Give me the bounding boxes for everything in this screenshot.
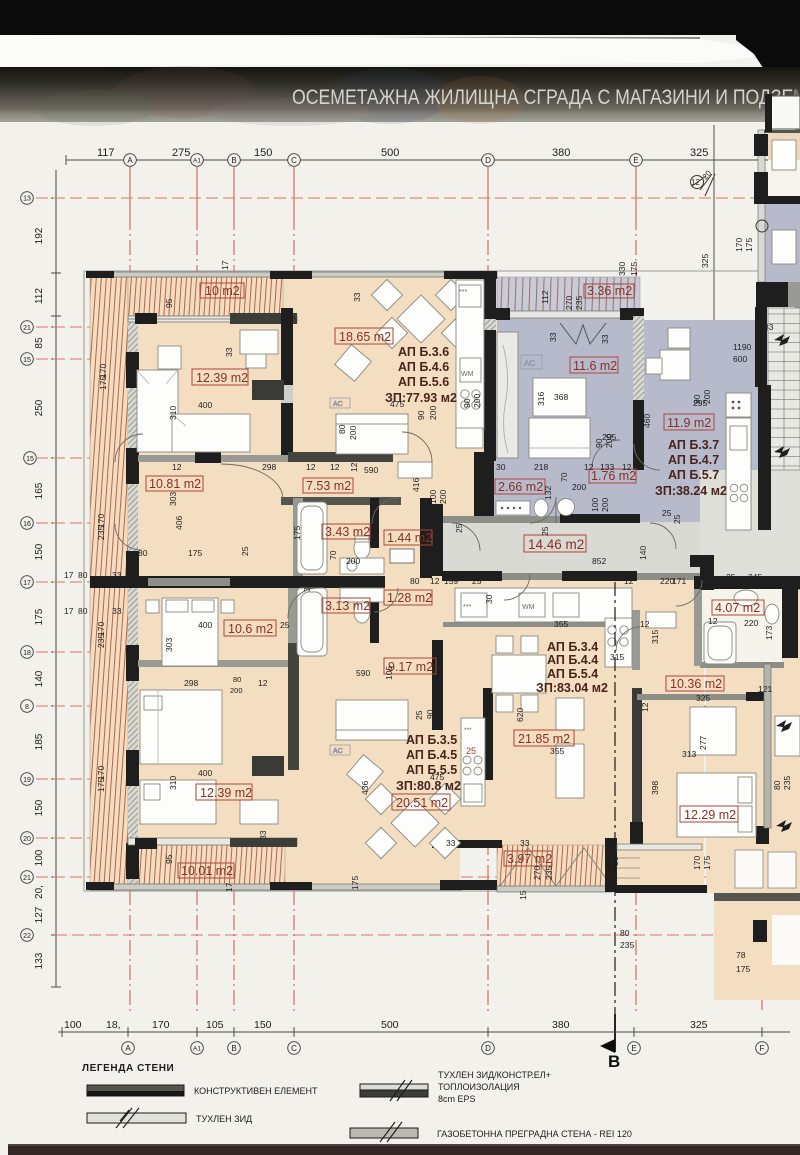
svg-text:235: 235 [544, 866, 554, 880]
svg-text:АП Б.4.7: АП Б.4.7 [668, 453, 719, 467]
svg-text:127: 127 [34, 906, 45, 923]
svg-text:140: 140 [34, 670, 45, 687]
svg-text:12: 12 [708, 616, 718, 626]
svg-text:WM: WM [522, 604, 535, 611]
svg-text:100: 100 [64, 1019, 82, 1031]
svg-text:235: 235 [96, 526, 106, 540]
svg-text:ЗП:83.04 м2: ЗП:83.04 м2 [536, 681, 608, 695]
svg-text:ТОПЛОИЗОЛАЦИЯ: ТОПЛОИЗОЛАЦИЯ [438, 1082, 520, 1092]
svg-text:АП Б.5.7: АП Б.5.7 [668, 468, 719, 482]
svg-text:460: 460 [642, 414, 652, 428]
svg-text:33: 33 [446, 838, 456, 848]
svg-text:78: 78 [736, 950, 746, 960]
svg-text:150: 150 [254, 1019, 272, 1031]
svg-text:10.36 m2: 10.36 m2 [670, 677, 722, 691]
svg-text:218: 218 [534, 462, 548, 472]
svg-text:277: 277 [698, 736, 708, 750]
svg-text:80: 80 [410, 576, 420, 586]
svg-text:АП Б.4.5: АП Б.4.5 [406, 748, 457, 762]
svg-text:355: 355 [550, 746, 564, 756]
svg-text:170: 170 [152, 1019, 170, 1031]
svg-text:12: 12 [624, 576, 634, 586]
svg-text:475: 475 [390, 399, 404, 409]
svg-text:ЗП:38.24 м2: ЗП:38.24 м2 [655, 484, 727, 498]
svg-text:95: 95 [164, 854, 174, 864]
svg-text:ОСЕМЕТАЖНА ЖИЛИЩНА СГРАДА С МА: ОСЕМЕТАЖНА ЖИЛИЩНА СГРАДА С МАГАЗИНИ И П… [292, 86, 800, 109]
svg-text:25: 25 [672, 514, 682, 524]
svg-text:ТУХЛЕН ЗИД: ТУХЛЕН ЗИД [196, 1114, 252, 1124]
svg-text:14.46 m2: 14.46 m2 [528, 537, 584, 552]
svg-text:80: 80 [337, 424, 347, 434]
svg-text:90: 90 [594, 438, 604, 448]
svg-text:ТУХЛЕН ЗИД/КОНСТР.ЕЛ+: ТУХЛЕН ЗИД/КОНСТР.ЕЛ+ [438, 1070, 551, 1080]
svg-text:7.53 m2: 7.53 m2 [306, 479, 351, 493]
svg-text:590: 590 [364, 465, 378, 475]
svg-text:12: 12 [430, 576, 440, 586]
svg-text:165: 165 [34, 482, 45, 499]
svg-text:200: 200 [702, 390, 712, 404]
svg-text:25: 25 [240, 546, 250, 556]
svg-text:175: 175 [98, 376, 108, 390]
svg-text:398: 398 [650, 781, 660, 795]
svg-text:A1: A1 [193, 1046, 201, 1053]
svg-text:30: 30 [484, 594, 494, 604]
svg-text:175: 175 [736, 964, 750, 974]
svg-text:235: 235 [574, 296, 584, 310]
svg-text:25: 25 [454, 523, 464, 533]
svg-text:АП Б.3.5: АП Б.3.5 [406, 733, 457, 747]
svg-text:8: 8 [25, 704, 29, 711]
svg-text:175: 175 [96, 778, 106, 792]
svg-text:КОНСТРУКТИВЕН ЕЛЕМЕНТ: КОНСТРУКТИВЕН ЕЛЕМЕНТ [194, 1086, 318, 1096]
svg-text:380: 380 [552, 1019, 570, 1031]
svg-text:33: 33 [112, 606, 122, 616]
svg-text:620: 620 [515, 708, 525, 722]
svg-text:25: 25 [726, 572, 736, 582]
svg-text:A1: A1 [193, 158, 201, 165]
svg-text:21.85 m2: 21.85 m2 [518, 732, 570, 746]
svg-text:590: 590 [356, 668, 370, 678]
svg-text:ЛЕГЕНДА СТЕНИ: ЛЕГЕНДА СТЕНИ [82, 1063, 174, 1074]
svg-text:298: 298 [262, 462, 276, 472]
svg-text:***: *** [459, 289, 467, 296]
svg-text:E: E [631, 1044, 636, 1053]
svg-text:15: 15 [26, 456, 34, 463]
svg-text:11.6 m2: 11.6 m2 [573, 359, 617, 373]
svg-text:33: 33 [112, 570, 122, 580]
svg-text:10.81 m2: 10.81 m2 [149, 477, 201, 491]
svg-text:90: 90 [425, 709, 435, 719]
svg-text:475: 475 [430, 772, 444, 782]
svg-text:192: 192 [34, 227, 45, 244]
svg-text:220: 220 [744, 618, 758, 628]
svg-text:500: 500 [381, 1019, 399, 1031]
svg-text:12: 12 [640, 702, 650, 712]
svg-text:20: 20 [23, 836, 31, 843]
svg-text:10 m2: 10 m2 [205, 284, 240, 298]
svg-text:235: 235 [782, 776, 792, 790]
svg-text:200: 200 [348, 426, 358, 440]
svg-text:17: 17 [220, 260, 230, 270]
svg-text:355: 355 [554, 619, 568, 629]
svg-text:175: 175 [744, 238, 754, 252]
svg-text:235: 235 [96, 634, 106, 648]
svg-text:3.36 m2: 3.36 m2 [587, 284, 632, 298]
svg-text:117: 117 [97, 147, 115, 159]
svg-text:200: 200 [428, 406, 438, 420]
svg-text:245: 245 [748, 572, 762, 582]
svg-text:D: D [485, 1044, 491, 1053]
svg-text:159: 159 [444, 576, 458, 586]
svg-text:175: 175 [34, 608, 45, 625]
svg-text:310: 310 [168, 406, 178, 420]
svg-text:B: B [231, 1044, 236, 1053]
svg-text:18.65 m2: 18.65 m2 [339, 330, 391, 344]
svg-text:12: 12 [172, 462, 182, 472]
svg-text:ЗП:80.8 м2: ЗП:80.8 м2 [396, 779, 461, 793]
svg-text:325: 325 [690, 1019, 708, 1031]
svg-text:33: 33 [600, 334, 610, 344]
svg-text:АП Б.4.6: АП Б.4.6 [398, 360, 449, 374]
svg-text:12: 12 [420, 552, 430, 562]
svg-text:200: 200 [230, 686, 243, 695]
svg-text:***: *** [463, 604, 471, 611]
svg-text:80: 80 [620, 928, 630, 938]
svg-text:33: 33 [258, 830, 268, 840]
svg-text:17: 17 [64, 606, 74, 616]
svg-text:175: 175 [350, 876, 360, 890]
svg-text:150: 150 [254, 147, 272, 159]
svg-text:80: 80 [78, 570, 88, 580]
svg-text:21: 21 [23, 325, 31, 332]
svg-text:80: 80 [138, 548, 148, 558]
svg-text:133: 133 [34, 952, 45, 969]
svg-text:150: 150 [34, 799, 45, 816]
svg-text:200: 200 [472, 394, 482, 408]
svg-text:406: 406 [174, 516, 184, 530]
svg-text:220: 220 [660, 576, 674, 586]
svg-text:12.29 m2: 12.29 m2 [684, 808, 736, 822]
svg-text:2.66 m2: 2.66 m2 [498, 480, 543, 494]
svg-text:АП Б.3.7: АП Б.3.7 [668, 438, 719, 452]
svg-text:25: 25 [540, 526, 550, 536]
svg-text:80: 80 [772, 780, 782, 790]
svg-text:150: 150 [34, 543, 45, 560]
svg-text:400: 400 [198, 768, 212, 778]
svg-text:325: 325 [690, 147, 708, 159]
svg-text:313: 313 [682, 749, 696, 759]
svg-text:80: 80 [233, 675, 241, 684]
svg-text:AC: AC [333, 401, 343, 408]
svg-text:25: 25 [466, 746, 476, 756]
svg-text:12: 12 [691, 178, 700, 187]
svg-text:368: 368 [554, 392, 568, 402]
svg-text:436: 436 [360, 781, 370, 795]
svg-text:200: 200 [604, 434, 614, 448]
svg-text:105: 105 [206, 1019, 224, 1031]
svg-text:12: 12 [584, 462, 594, 472]
svg-text:200: 200 [435, 705, 445, 719]
svg-text:12: 12 [376, 576, 386, 586]
svg-text:AC: AC [333, 748, 343, 755]
svg-text:70: 70 [328, 550, 338, 560]
svg-text:416: 416 [411, 478, 421, 492]
svg-text:3.43 m2: 3.43 m2 [325, 525, 370, 539]
svg-text:175: 175 [292, 526, 302, 540]
svg-text:12.39 m2: 12.39 m2 [200, 786, 252, 800]
svg-text:330: 330 [617, 262, 627, 276]
svg-text:10.01 m2: 10.01 m2 [181, 864, 233, 878]
svg-text:133: 133 [600, 462, 614, 472]
svg-text:600: 600 [733, 354, 747, 364]
svg-text:140: 140 [638, 546, 648, 560]
svg-text:АП Б.5.6: АП Б.5.6 [398, 375, 449, 389]
svg-text:25: 25 [414, 710, 424, 720]
svg-text:F: F [760, 1044, 765, 1053]
svg-text:A: A [127, 156, 133, 165]
svg-text:316: 316 [536, 392, 546, 406]
svg-text:C: C [291, 1044, 297, 1053]
svg-text:20,: 20, [34, 885, 45, 899]
svg-text:12: 12 [640, 619, 650, 629]
svg-text:185: 185 [34, 733, 45, 750]
svg-text:85: 85 [34, 337, 45, 349]
svg-text:АП Б.4.4: АП Б.4.4 [547, 653, 598, 667]
svg-text:20.51 m2: 20.51 m2 [396, 796, 448, 810]
svg-text:15: 15 [23, 357, 31, 364]
svg-text:90: 90 [416, 410, 426, 420]
svg-text:33: 33 [224, 347, 234, 357]
svg-text:12: 12 [306, 462, 316, 472]
svg-text:303: 303 [168, 492, 178, 506]
svg-text:1190: 1190 [733, 342, 752, 352]
svg-text:100: 100 [590, 498, 600, 512]
svg-text:18,: 18, [106, 1019, 121, 1031]
svg-text:275: 275 [172, 147, 190, 159]
svg-text:25: 25 [280, 620, 290, 630]
svg-text:400: 400 [198, 400, 212, 410]
svg-text:12: 12 [622, 462, 632, 472]
svg-text:303: 303 [164, 638, 174, 652]
svg-text:121: 121 [758, 684, 772, 694]
svg-text:200: 200 [346, 556, 360, 566]
svg-text:3.97 m2: 3.97 m2 [507, 852, 552, 866]
svg-text:132: 132 [543, 486, 553, 500]
svg-text:90: 90 [462, 398, 472, 408]
svg-text:212: 212 [300, 576, 314, 586]
svg-text:16: 16 [23, 521, 31, 528]
svg-text:298: 298 [184, 678, 198, 688]
svg-text:12: 12 [349, 462, 359, 472]
svg-text:4.07 m2: 4.07 m2 [715, 601, 760, 615]
svg-text:АП Б.5.4: АП Б.5.4 [547, 667, 598, 681]
svg-text:11.9 m2: 11.9 m2 [667, 416, 711, 430]
svg-text:18: 18 [23, 650, 31, 657]
svg-text:112: 112 [34, 288, 45, 304]
svg-text:A: A [125, 1044, 131, 1053]
svg-text:22: 22 [23, 933, 31, 940]
svg-text:В: В [608, 1052, 620, 1071]
svg-text:310: 310 [168, 776, 178, 790]
svg-text:30: 30 [496, 462, 506, 472]
svg-text:***: *** [464, 727, 472, 734]
svg-text:17: 17 [23, 580, 31, 587]
svg-text:173: 173 [764, 626, 774, 640]
svg-text:19: 19 [23, 777, 31, 784]
svg-text:100: 100 [428, 490, 438, 504]
svg-text:175: 175 [702, 856, 712, 870]
svg-text:13: 13 [23, 196, 31, 203]
svg-text:25: 25 [662, 508, 672, 518]
svg-text:400: 400 [198, 620, 212, 630]
svg-text:8cm EPS: 8cm EPS [438, 1094, 476, 1104]
svg-text:12: 12 [330, 462, 340, 472]
svg-text:315: 315 [650, 630, 660, 644]
svg-text:9.17 m2: 9.17 m2 [388, 660, 433, 674]
svg-text:175: 175 [629, 262, 639, 276]
svg-text:33: 33 [764, 322, 774, 332]
svg-text:3.13 m2: 3.13 m2 [325, 599, 370, 613]
svg-text:212: 212 [330, 576, 344, 586]
svg-text:12: 12 [258, 678, 268, 688]
svg-text:270: 270 [564, 296, 574, 310]
svg-text:112: 112 [540, 290, 550, 304]
svg-text:852: 852 [592, 556, 606, 566]
svg-text:170: 170 [692, 856, 702, 870]
svg-text:33: 33 [130, 462, 140, 472]
svg-text:1.44 m2: 1.44 m2 [387, 531, 432, 545]
svg-text:АП Б.3.4: АП Б.3.4 [547, 640, 598, 654]
svg-text:1.28 m2: 1.28 m2 [387, 591, 432, 605]
svg-text:17: 17 [224, 882, 234, 892]
svg-text:105: 105 [384, 666, 394, 680]
svg-text:200: 200 [572, 482, 586, 492]
svg-text:270: 270 [532, 866, 542, 880]
svg-text:80: 80 [78, 606, 88, 616]
svg-text:AC: AC [524, 359, 535, 368]
svg-text:B: B [231, 156, 236, 165]
svg-text:17: 17 [64, 570, 74, 580]
svg-text:200: 200 [600, 498, 610, 512]
svg-text:21: 21 [23, 875, 31, 882]
svg-text:10.6 m2: 10.6 m2 [228, 622, 273, 636]
svg-text:C: C [291, 156, 297, 165]
svg-text:12.39 m2: 12.39 m2 [196, 371, 248, 385]
svg-text:380: 380 [552, 147, 570, 159]
svg-text:500: 500 [381, 147, 399, 159]
svg-text:170: 170 [734, 238, 744, 252]
svg-text:WM: WM [461, 371, 474, 378]
svg-text:33: 33 [548, 332, 558, 342]
svg-text:25: 25 [472, 576, 482, 586]
svg-text:АП Б.3.6: АП Б.3.6 [398, 345, 449, 359]
svg-text:D: D [485, 156, 491, 165]
svg-text:175: 175 [188, 548, 202, 558]
svg-text:33: 33 [352, 292, 362, 302]
svg-text:200: 200 [438, 490, 448, 504]
svg-text:70: 70 [559, 472, 569, 482]
svg-text:95: 95 [164, 298, 174, 308]
svg-text:315: 315 [610, 652, 624, 662]
svg-text:250: 250 [34, 399, 45, 416]
svg-text:325: 325 [696, 693, 710, 703]
svg-text:100: 100 [34, 849, 45, 866]
svg-text:33: 33 [520, 838, 530, 848]
svg-text:15: 15 [518, 890, 528, 900]
svg-text:E: E [633, 156, 638, 165]
svg-text:235: 235 [620, 940, 634, 950]
svg-text:ГАЗОБЕТОННА ПРЕГРАДНА СТЕНА -: ГАЗОБЕТОННА ПРЕГРАДНА СТЕНА - REI 120 [437, 1129, 632, 1139]
svg-text:90: 90 [692, 394, 702, 404]
svg-text:325: 325 [700, 254, 710, 268]
